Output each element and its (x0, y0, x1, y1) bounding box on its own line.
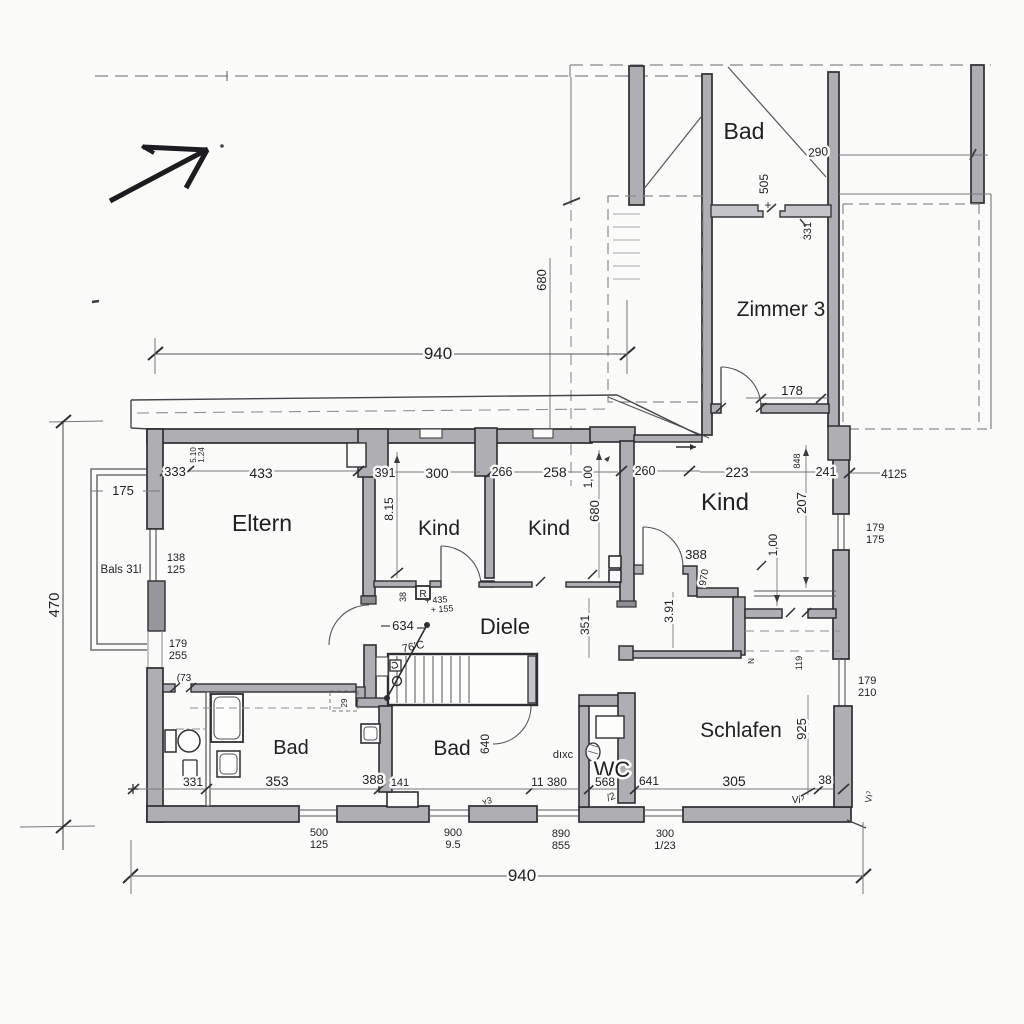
svg-text:Kind: Kind (701, 489, 749, 516)
svg-text:890: 890 (552, 828, 570, 840)
svg-text:433: 433 (249, 465, 273, 481)
svg-text:223: 223 (725, 464, 749, 480)
svg-text:300: 300 (425, 465, 449, 481)
svg-text:38: 38 (818, 773, 832, 787)
svg-text:3.91: 3.91 (662, 599, 676, 623)
svg-text:Schlafen: Schlafen (700, 719, 782, 742)
svg-text:266: 266 (492, 465, 513, 479)
svg-text:dıxc: dıxc (553, 749, 574, 761)
svg-text:680: 680 (534, 269, 549, 291)
svg-text:1.24: 1.24 (197, 447, 206, 463)
svg-text:241: 241 (816, 465, 837, 479)
svg-text:Kind: Kind (528, 517, 570, 540)
svg-text:125: 125 (167, 564, 185, 576)
svg-text:640: 640 (478, 734, 492, 754)
svg-text:Bals 31l: Bals 31l (101, 564, 142, 576)
svg-text:333: 333 (164, 464, 186, 479)
svg-text:331: 331 (802, 222, 814, 240)
svg-text:179: 179 (169, 638, 187, 650)
svg-text:1,00: 1,00 (768, 534, 780, 556)
svg-text:391: 391 (375, 466, 396, 480)
svg-text:305: 305 (722, 773, 746, 789)
svg-text:N: N (747, 658, 756, 664)
svg-text:Kind: Kind (418, 517, 460, 540)
svg-text:351: 351 (578, 615, 592, 635)
svg-text:1,00: 1,00 (583, 466, 595, 488)
svg-text:11 380: 11 380 (531, 775, 567, 789)
svg-text:568: 568 (595, 775, 615, 789)
svg-text:470: 470 (46, 592, 63, 617)
svg-text:Bad: Bad (433, 737, 470, 760)
svg-text:331: 331 (183, 775, 203, 789)
svg-text:Bad: Bad (724, 118, 765, 144)
svg-text:290: 290 (807, 144, 828, 160)
svg-text:175: 175 (866, 534, 884, 546)
svg-text:38: 38 (398, 592, 408, 602)
svg-text:9.5: 9.5 (445, 839, 460, 851)
svg-text:125: 125 (310, 839, 328, 851)
svg-text:855: 855 (552, 840, 570, 852)
svg-text:680: 680 (587, 500, 602, 522)
svg-text:1/23: 1/23 (654, 840, 675, 852)
svg-text:848: 848 (792, 453, 802, 468)
svg-text:353: 353 (265, 773, 289, 789)
svg-text:(73: (73 (177, 673, 192, 684)
svg-text:940: 940 (424, 344, 452, 363)
svg-text:634: 634 (392, 618, 414, 633)
svg-text:388: 388 (685, 547, 707, 562)
svg-text:175: 175 (112, 483, 134, 498)
svg-text:641: 641 (639, 774, 659, 788)
svg-text:Vıˀ: Vıˀ (863, 790, 875, 803)
svg-text:207: 207 (794, 492, 809, 514)
svg-text:940: 940 (508, 866, 536, 885)
svg-text:Eltern: Eltern (232, 510, 292, 536)
svg-text:+ 155: + 155 (430, 603, 453, 615)
svg-text:900: 900 (444, 827, 462, 839)
svg-text:Diele: Diele (480, 614, 530, 639)
svg-text:210: 210 (858, 687, 876, 699)
svg-text:260: 260 (635, 464, 656, 478)
svg-text:258: 258 (543, 464, 567, 480)
svg-text:Bad: Bad (273, 737, 309, 759)
svg-text:179: 179 (858, 675, 876, 687)
svg-text:255: 255 (169, 650, 187, 662)
svg-text:388: 388 (362, 772, 384, 787)
svg-text:119: 119 (794, 656, 804, 670)
svg-text:4125: 4125 (881, 469, 907, 481)
svg-text:500: 500 (310, 827, 328, 839)
svg-text:925: 925 (794, 718, 809, 740)
svg-text:179: 179 (866, 522, 884, 534)
svg-text:Zimmer 3: Zimmer 3 (737, 298, 826, 321)
svg-text:8.15: 8.15 (382, 497, 396, 521)
svg-text:300: 300 (656, 828, 674, 840)
svg-text:178: 178 (781, 383, 803, 398)
svg-text:29: 29 (340, 698, 349, 707)
svg-text:505: 505 (757, 174, 771, 194)
svg-text:141: 141 (391, 777, 409, 789)
svg-text:138: 138 (167, 552, 185, 564)
